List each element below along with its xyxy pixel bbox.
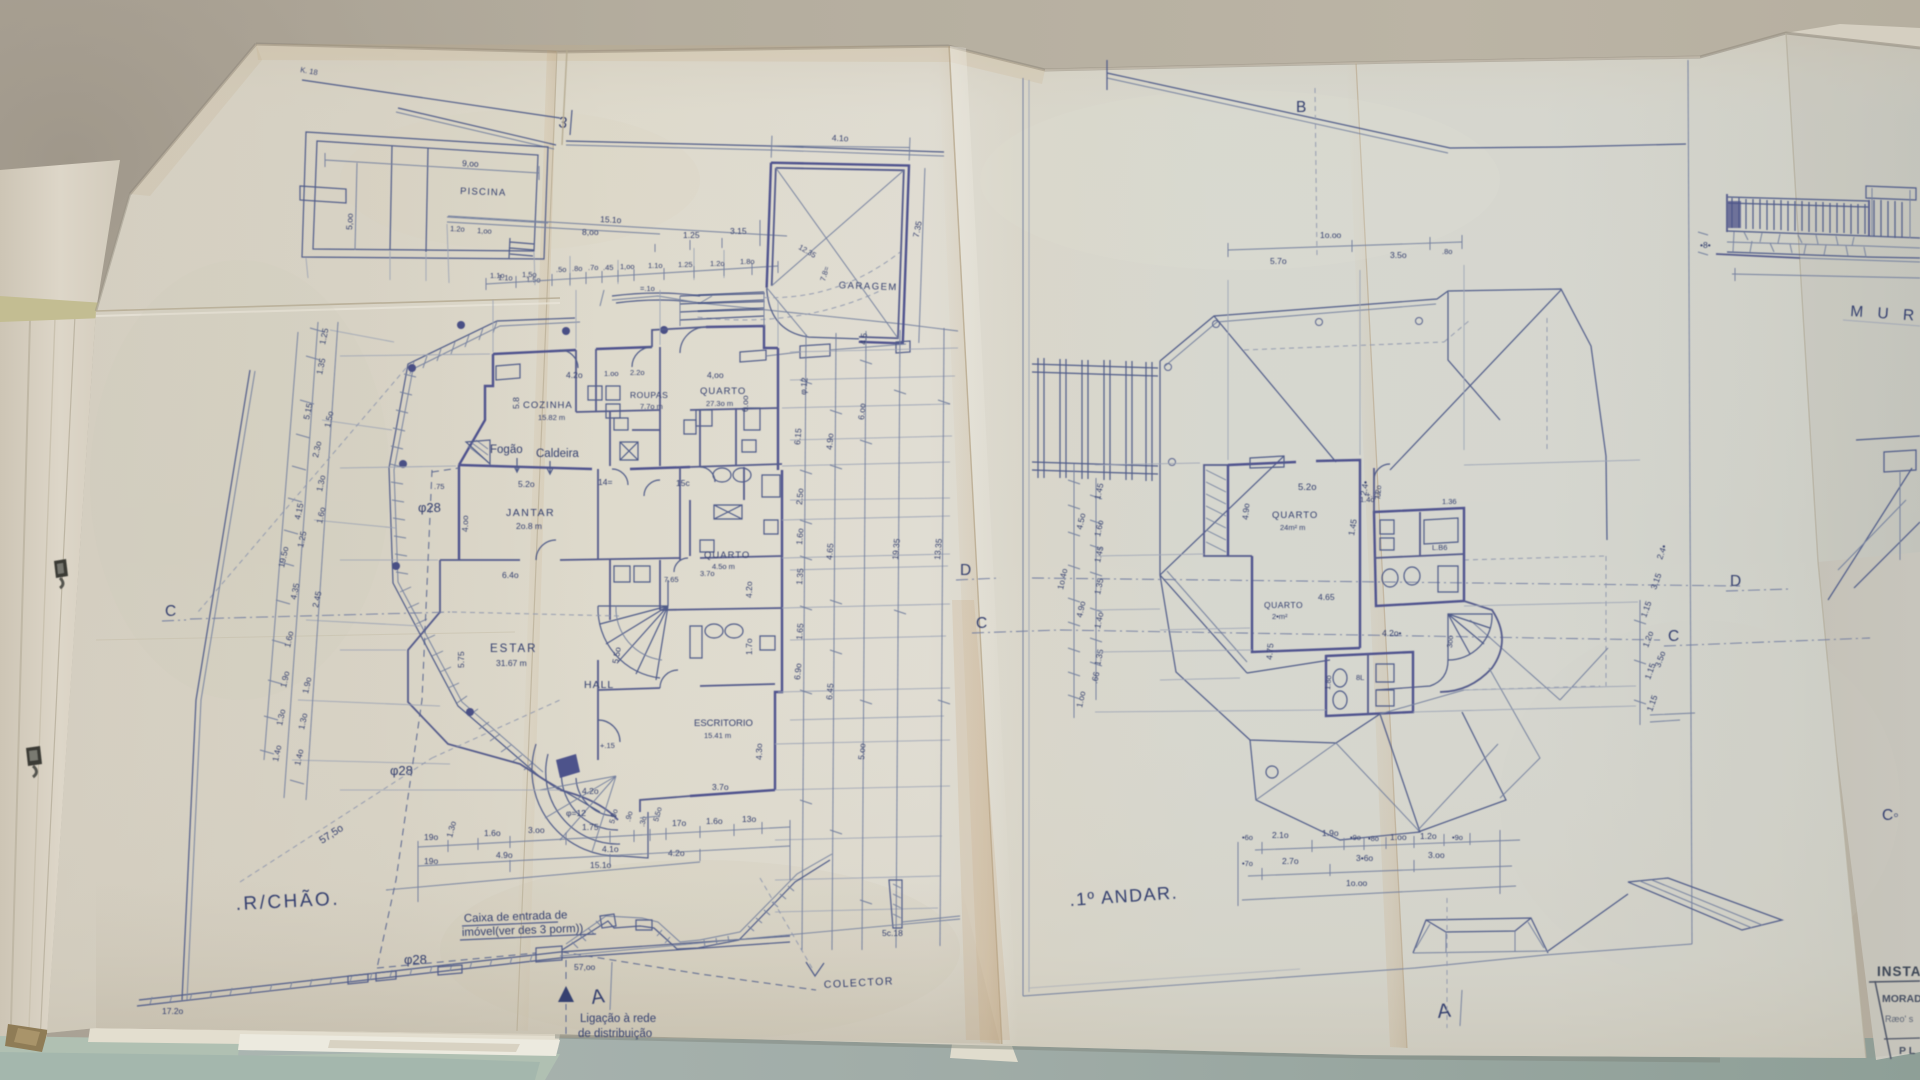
svg-text:•8o: •8o (1368, 834, 1379, 843)
svg-text:13.35: 13.35 (932, 538, 944, 560)
svg-text:1,oo: 1,oo (620, 262, 635, 271)
svg-text:5.75: 5.75 (456, 651, 466, 668)
svg-text:19o: 19o (424, 856, 438, 866)
svg-text:ROUPAS: ROUPAS (630, 390, 668, 400)
svg-text:2.5o: 2.5o (794, 488, 805, 506)
svg-text:1.oo: 1.oo (604, 369, 619, 378)
svg-text:.7o: .7o (588, 263, 598, 272)
svg-text:GARAGEM: GARAGEM (839, 280, 898, 293)
svg-text:1.25: 1.25 (683, 230, 700, 240)
svg-text:4.9o: 4.9o (1240, 503, 1251, 521)
svg-text:1.2o: 1.2o (1420, 831, 1437, 841)
svg-text:4.3o: 4.3o (754, 743, 764, 760)
svg-text:1.7o: 1.7o (744, 638, 754, 655)
svg-text:4.5o m: 4.5o m (712, 562, 735, 571)
svg-text:4.9o: 4.9o (496, 850, 513, 860)
svg-text:1.65: 1.65 (794, 623, 805, 641)
svg-text:3.15: 3.15 (730, 226, 747, 236)
svg-text:6.4o: 6.4o (502, 570, 519, 580)
svg-text:+.15: +.15 (600, 741, 615, 750)
svg-text:1.36: 1.36 (1442, 497, 1457, 506)
svg-text:.75: .75 (434, 482, 444, 491)
svg-text:5,oo: 5,oo (344, 213, 355, 230)
svg-text:3.7o: 3.7o (712, 782, 729, 792)
svg-text:D: D (1730, 573, 1741, 590)
svg-text:φ28: φ28 (390, 763, 413, 778)
svg-text:14=: 14= (598, 477, 612, 487)
svg-text:15c: 15c (676, 478, 690, 488)
svg-text:5.7o: 5.7o (1270, 256, 1287, 266)
svg-text:2.2o: 2.2o (630, 368, 645, 377)
svg-text:ESTAR: ESTAR (490, 643, 538, 655)
svg-text:4,oo: 4,oo (707, 370, 724, 380)
svg-text:3.oo: 3.oo (1428, 850, 1445, 860)
svg-text:•7o: •7o (1242, 859, 1253, 868)
svg-text:3.7o: 3.7o (700, 569, 715, 578)
svg-text:QUARTO: QUARTO (1264, 600, 1303, 610)
svg-text:MORAD: MORAD (1882, 993, 1920, 1005)
svg-text:de distribuição: de distribuição (578, 1028, 652, 1040)
svg-text:1.6o: 1.6o (794, 528, 805, 546)
svg-text:φ=12: φ=12 (566, 808, 586, 818)
svg-text:4.oo: 4.oo (460, 515, 470, 532)
svg-text:C: C (165, 603, 176, 620)
svg-text:1.2o: 1.2o (450, 224, 465, 234)
svg-text:7.65: 7.65 (664, 575, 679, 584)
svg-text:24m² m: 24m² m (1280, 523, 1305, 532)
svg-text:1,oo: 1,oo (477, 226, 492, 236)
svg-text:27.3o m: 27.3o m (706, 399, 733, 408)
svg-text:5.8: 5.8 (511, 397, 521, 409)
svg-text:2.7o: 2.7o (1282, 856, 1299, 866)
svg-text:19.35: 19.35 (890, 538, 902, 560)
svg-text:1.8o: 1.8o (1323, 675, 1333, 690)
svg-text:•9o: •9o (1452, 833, 1463, 842)
svg-text:15.1o: 15.1o (590, 860, 612, 870)
svg-text:B: B (1296, 99, 1306, 116)
svg-text:1.5o: 1.5o (522, 270, 537, 279)
svg-text:17o: 17o (672, 818, 686, 828)
svg-text:3.5o: 3.5o (1390, 250, 1407, 260)
svg-text:1.2o: 1.2o (710, 259, 725, 268)
svg-text:COZINHA: COZINHA (523, 400, 573, 411)
svg-text:Caldeira: Caldeira (536, 448, 579, 460)
svg-text:1o.oo: 1o.oo (1320, 230, 1342, 240)
svg-text:8L: 8L (1356, 673, 1364, 682)
svg-text:Ligação à rede: Ligação à rede (580, 1013, 656, 1025)
svg-text:.45: .45 (603, 263, 613, 272)
svg-text:6.45: 6.45 (824, 683, 835, 701)
svg-text:1.8o: 1.8o (740, 257, 755, 266)
svg-text:4.65: 4.65 (1318, 592, 1335, 602)
svg-text:Ræoʹ s: Ræoʹ s (1885, 1014, 1914, 1024)
svg-text:1.oo: 1.oo (1390, 832, 1407, 842)
svg-text:C◦: C◦ (1882, 807, 1899, 824)
svg-text:.8o: .8o (1442, 247, 1452, 256)
svg-text:19o: 19o (424, 832, 438, 842)
svg-text:9,oo: 9,oo (462, 158, 479, 169)
svg-text:INSTAL: INSTAL (1877, 964, 1920, 979)
svg-text:•6o: •6o (1242, 833, 1253, 842)
svg-text:4.1o: 4.1o (602, 844, 619, 854)
svg-text:4.2o: 4.2o (744, 581, 754, 598)
svg-text:HALL: HALL (584, 679, 614, 691)
svg-text:5.2o: 5.2o (518, 479, 535, 489)
svg-text:1.35: 1.35 (794, 568, 805, 586)
svg-text:QUARTO: QUARTO (704, 550, 750, 561)
svg-text:15.1o: 15.1o (600, 214, 622, 225)
svg-text:4.9o: 4.9o (824, 433, 835, 451)
svg-text:31.67 m: 31.67 m (496, 658, 527, 668)
svg-text:=.1o: =.1o (640, 284, 655, 293)
svg-text:5.oo: 5.oo (856, 743, 867, 761)
svg-text:1.1o: 1.1o (490, 271, 505, 280)
svg-text:1.75: 1.75 (582, 822, 599, 832)
svg-text:1o.oo: 1o.oo (1346, 878, 1368, 888)
svg-text:1.25: 1.25 (678, 260, 693, 269)
svg-text:P L: P L (1899, 1045, 1916, 1057)
svg-text:6.9o: 6.9o (792, 663, 803, 681)
svg-text:4.5: 4.5 (858, 332, 869, 345)
svg-text:57,oo: 57,oo (574, 962, 596, 972)
svg-text:•8•: •8• (1700, 240, 1711, 250)
svg-text:QUARTO: QUARTO (1272, 510, 1318, 521)
svg-text:4.2o•: 4.2o• (1382, 628, 1402, 638)
svg-text:7.7o m: 7.7o m (640, 402, 663, 411)
svg-text:φ28: φ28 (418, 500, 441, 515)
svg-text:4.2o: 4.2o (668, 848, 685, 858)
svg-text:L.B6: L.B6 (1432, 543, 1447, 552)
svg-text:.5o: .5o (556, 265, 566, 274)
svg-text:4.2o: 4.2o (582, 786, 599, 796)
svg-text:3oo: 3oo (1445, 635, 1455, 648)
svg-text:JANTAR: JANTAR (506, 507, 555, 519)
svg-text:QUARTO: QUARTO (700, 386, 746, 397)
svg-text:4.1o: 4.1o (832, 133, 849, 144)
svg-text:1.1o: 1.1o (648, 261, 663, 270)
svg-text:4.65: 4.65 (824, 543, 835, 561)
svg-text:5c.18: 5c.18 (882, 928, 903, 938)
svg-text:2o.8 m: 2o.8 m (516, 521, 542, 531)
svg-text:2•m²: 2•m² (1272, 612, 1288, 621)
svg-text:Fogão: Fogão (490, 444, 523, 456)
svg-text:PISCINA: PISCINA (460, 186, 507, 199)
svg-text:3•6o: 3•6o (1356, 853, 1373, 863)
svg-text:13o: 13o (742, 814, 756, 824)
svg-text:D: D (960, 562, 971, 579)
svg-text:C: C (976, 615, 987, 632)
svg-text:.8o: .8o (572, 264, 582, 273)
svg-text:1.9o: 1.9o (1322, 828, 1339, 838)
svg-text:•9o: •9o (1350, 833, 1361, 842)
svg-text:2.1o: 2.1o (1272, 830, 1289, 840)
svg-text:3.oo: 3.oo (528, 825, 545, 835)
svg-text:6.15: 6.15 (792, 428, 803, 446)
svg-text:φ.12: φ.12 (798, 377, 809, 395)
svg-text:ESCRITORIO: ESCRITORIO (694, 718, 753, 729)
svg-text:4.2o: 4.2o (566, 370, 583, 380)
svg-text:1.6o: 1.6o (706, 816, 723, 826)
svg-text:1.6o: 1.6o (484, 828, 501, 838)
svg-text:4.75: 4.75 (1264, 643, 1275, 661)
svg-text:6.oo: 6.oo (856, 403, 867, 421)
svg-text:5.2o: 5.2o (1298, 482, 1317, 493)
svg-text:15.41 m: 15.41 m (704, 731, 731, 740)
svg-text:C: C (1668, 628, 1679, 645)
svg-text:15.82 m: 15.82 m (538, 413, 565, 422)
svg-text:6.oo: 6.oo (740, 395, 750, 412)
svg-text:8,oo: 8,oo (582, 227, 599, 237)
svg-text:17.2o: 17.2o (162, 1006, 184, 1016)
